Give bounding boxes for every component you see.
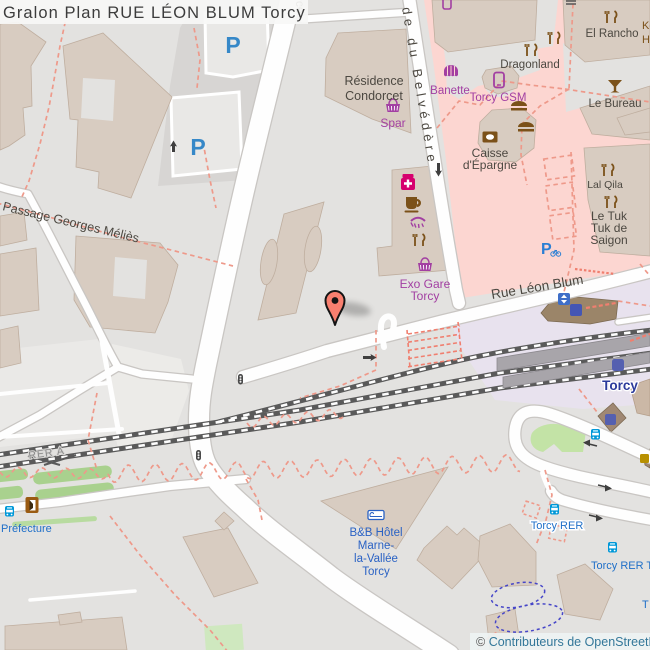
svg-text:El Rancho: El Rancho	[585, 28, 638, 40]
svg-text:la-Vallée: la-Vallée	[354, 553, 398, 565]
svg-text:Torcy: Torcy	[411, 289, 440, 303]
svg-text:Torcy RER: Torcy RER	[531, 520, 584, 532]
svg-text:Préfecture: Préfecture	[1, 523, 52, 535]
svg-text:P: P	[190, 134, 205, 160]
svg-text:Dragonland: Dragonland	[500, 59, 559, 71]
svg-text:Gralon Plan RUE LÉON BLUM Torc: Gralon Plan RUE LÉON BLUM Torcy	[3, 3, 306, 22]
svg-text:Résidence: Résidence	[344, 74, 403, 88]
svg-text:Ho: Ho	[642, 34, 650, 46]
svg-text:P: P	[225, 32, 240, 58]
svg-text:Lal Qila: Lal Qila	[587, 179, 623, 191]
svg-text:Le Bureau: Le Bureau	[588, 98, 641, 110]
svg-text:Torcy: Torcy	[362, 566, 390, 578]
svg-text:Torcy: Torcy	[602, 378, 638, 393]
svg-text:Spar: Spar	[380, 116, 405, 130]
svg-text:Ke: Ke	[642, 20, 650, 32]
svg-text:Condorcet: Condorcet	[345, 89, 403, 103]
svg-text:B&B Hôtel: B&B Hôtel	[349, 527, 402, 539]
svg-text:Saigon: Saigon	[590, 233, 627, 247]
svg-text:Torcy GSM: Torcy GSM	[470, 92, 527, 104]
svg-text:P: P	[541, 241, 552, 258]
svg-text:d'Épargne: d'Épargne	[463, 157, 518, 172]
svg-text:T: T	[642, 599, 649, 611]
svg-text:Torcy RER To: Torcy RER To	[591, 560, 650, 572]
svg-text:Marne-: Marne-	[358, 540, 395, 552]
svg-text:© Contributeurs de OpenStreetM: © Contributeurs de OpenStreetMap	[476, 635, 650, 649]
svg-text:Banette: Banette	[430, 85, 470, 97]
